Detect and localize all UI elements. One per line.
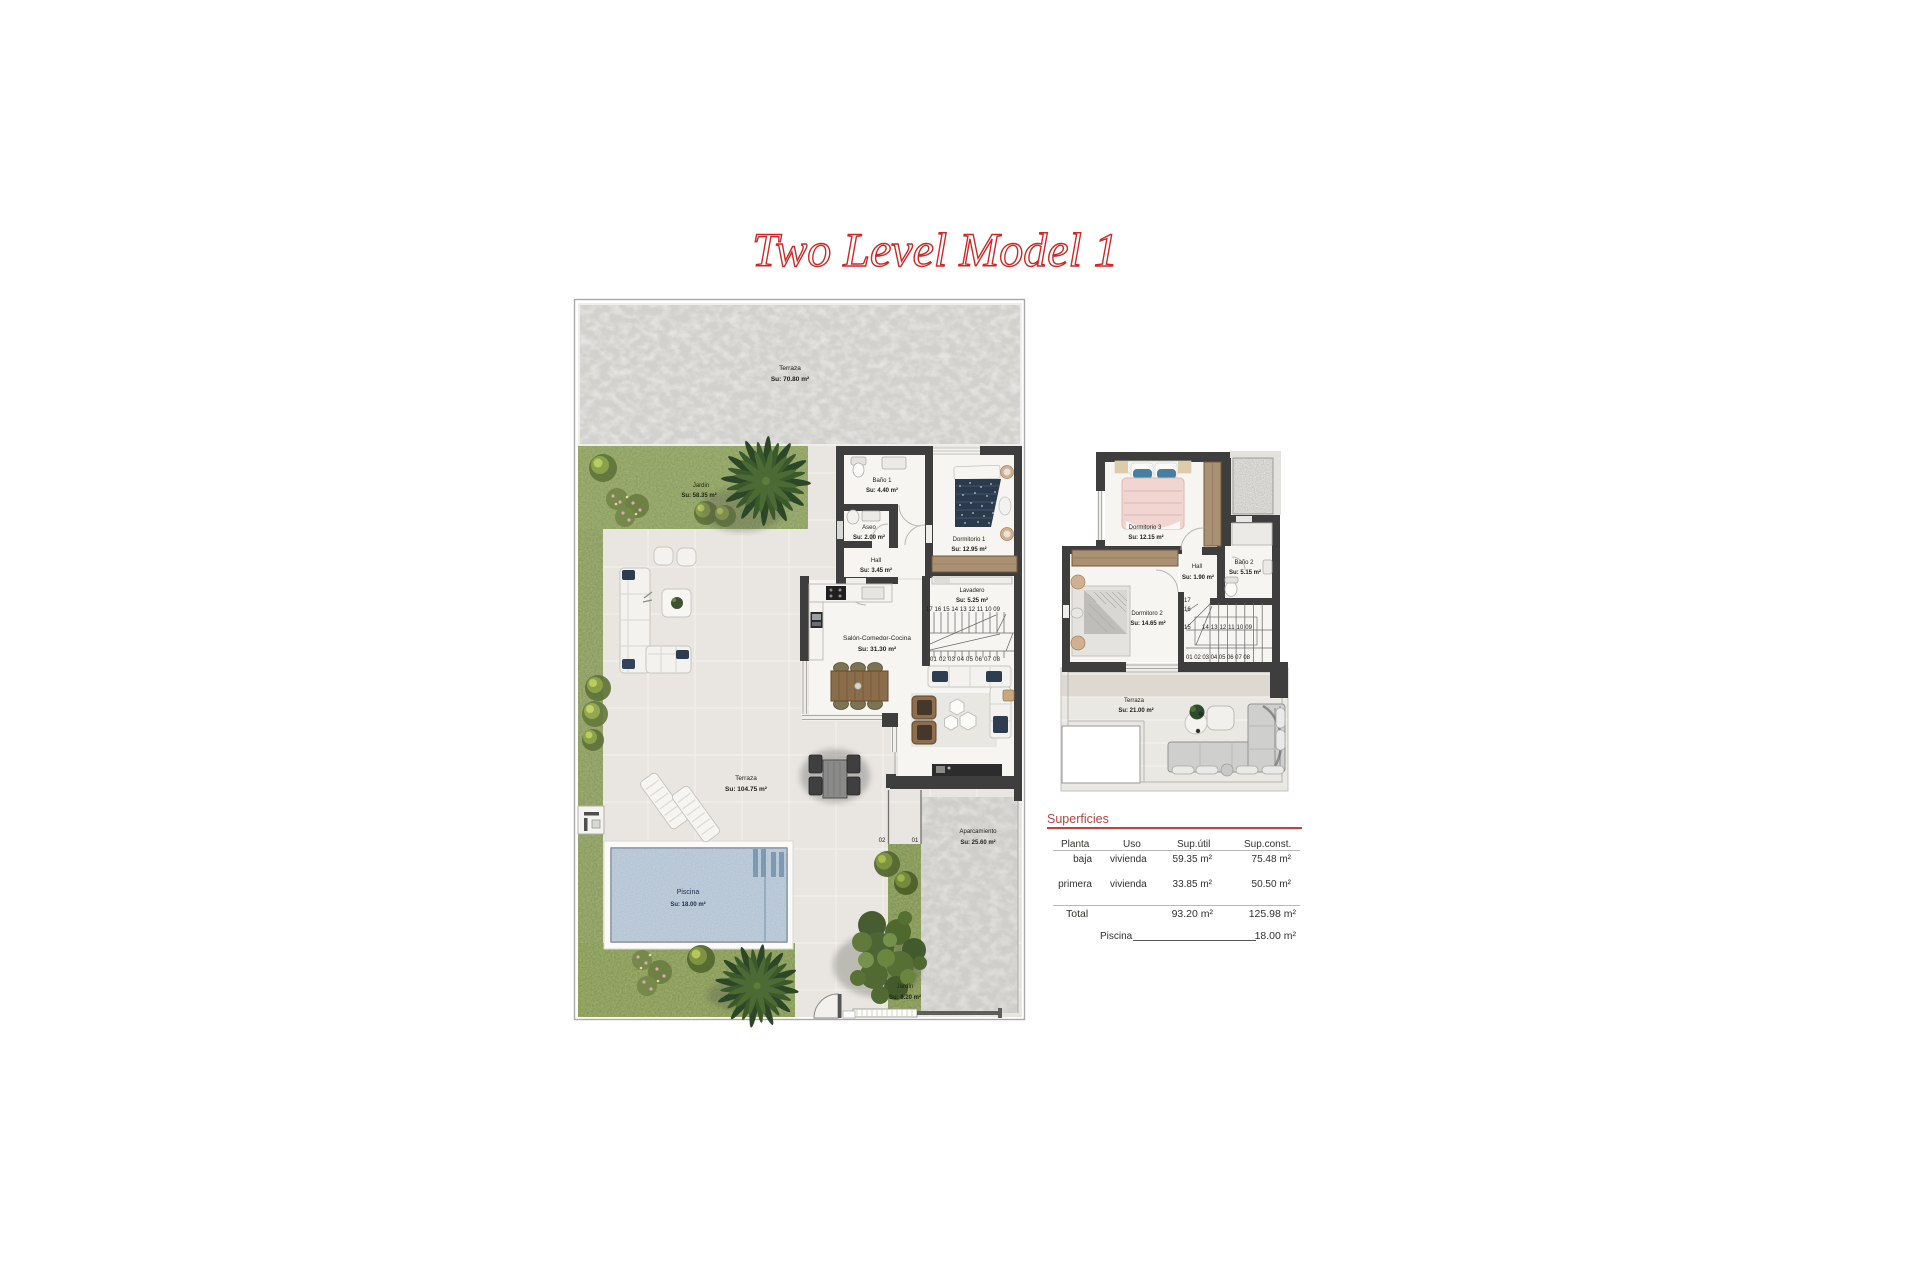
svg-text:Su: 12.15 m²: Su: 12.15 m² [1128, 534, 1163, 541]
svg-text:Salón-Comedor-Cocina: Salón-Comedor-Cocina [843, 635, 911, 642]
svg-text:Su: 70.80 m²: Su: 70.80 m² [771, 376, 810, 383]
svg-text:15: 15 [1184, 625, 1191, 631]
svg-text:vivienda: vivienda [1110, 854, 1147, 865]
svg-text:Lavadero: Lavadero [959, 588, 985, 594]
svg-text:baja: baja [1073, 854, 1092, 865]
svg-text:Two Level Model 1: Two Level Model 1 [752, 224, 1118, 277]
svg-text:17 16 15 14 13 12 11 10 09: 17 16 15 14 13 12 11 10 09 [926, 607, 1001, 613]
svg-text:Sup.const.: Sup.const. [1244, 839, 1291, 850]
svg-text:Total: Total [1066, 908, 1088, 920]
svg-text:Su: 104.75 m²: Su: 104.75 m² [725, 786, 768, 793]
svg-text:Dormitoro 2: Dormitoro 2 [1131, 611, 1163, 617]
svg-text:75.48 m²: 75.48 m² [1252, 854, 1292, 865]
svg-text:125.98 m²: 125.98 m² [1249, 908, 1297, 920]
svg-text:Dormitorio 3: Dormitorio 3 [1129, 525, 1162, 531]
svg-text:Piscina: Piscina [1100, 931, 1133, 942]
svg-text:Su: 3.45 m²: Su: 3.45 m² [860, 567, 892, 574]
svg-text:Su: 1.90 m²: Su: 1.90 m² [1182, 574, 1214, 581]
svg-text:Jardin: Jardin [693, 483, 709, 489]
svg-text:Aparcamiento: Aparcamiento [959, 829, 997, 835]
svg-text:Su: 14.65 m²: Su: 14.65 m² [1130, 620, 1165, 627]
svg-text:33.85 m²: 33.85 m² [1173, 879, 1213, 890]
svg-text:01 02 03 04 05 06 07 08: 01 02 03 04 05 06 07 08 [930, 657, 1001, 663]
svg-text:01 02 03 04 05 06 07 08: 01 02 03 04 05 06 07 08 [1186, 655, 1251, 661]
svg-text:Su: 2.00 m²: Su: 2.00 m² [853, 534, 885, 541]
svg-text:Su: 5.25 m²: Su: 5.25 m² [956, 597, 988, 604]
svg-text:Hall: Hall [1192, 564, 1202, 570]
svg-text:93.20 m²: 93.20 m² [1172, 908, 1214, 920]
svg-text:Baño 1: Baño 1 [872, 478, 892, 484]
svg-text:16: 16 [1184, 607, 1191, 613]
svg-text:Dormitorio 1: Dormitorio 1 [953, 537, 986, 543]
svg-text:Su: 58.35 m²: Su: 58.35 m² [681, 492, 716, 499]
svg-text:Terraza: Terraza [735, 775, 757, 782]
svg-text:59.35 m²: 59.35 m² [1173, 854, 1213, 865]
svg-text:Su: 12.95 m²: Su: 12.95 m² [951, 546, 986, 553]
svg-text:Su: 5.15 m²: Su: 5.15 m² [1229, 569, 1261, 576]
svg-text:02: 02 [879, 838, 886, 844]
svg-text:Su: 4.40 m²: Su: 4.40 m² [866, 487, 898, 494]
svg-text:Su: 18.00 m²: Su: 18.00 m² [670, 901, 705, 908]
svg-text:18.00 m²: 18.00 m² [1255, 930, 1297, 942]
svg-text:17: 17 [1184, 598, 1191, 604]
svg-text:01: 01 [912, 838, 919, 844]
svg-text:Planta: Planta [1061, 839, 1090, 850]
svg-text:Sup.útil: Sup.útil [1177, 839, 1210, 850]
svg-text:Hall: Hall [871, 558, 881, 564]
svg-text:Terraza: Terraza [1124, 698, 1145, 704]
svg-text:Piscina: Piscina [677, 889, 700, 896]
svg-text:Superficies: Superficies [1047, 812, 1109, 826]
svg-text:Baño 2: Baño 2 [1234, 560, 1254, 566]
svg-text:primera: primera [1058, 879, 1092, 890]
svg-text:Uso: Uso [1123, 839, 1141, 850]
svg-text:14 13 12 11 10 09: 14 13 12 11 10 09 [1202, 625, 1253, 631]
svg-text:Su: 31.30 m²: Su: 31.30 m² [858, 646, 897, 653]
svg-text:Aseo: Aseo [862, 525, 876, 531]
svg-text:Su: 21.00 m²: Su: 21.00 m² [1118, 707, 1153, 714]
svg-text:Su: 6.20 m²: Su: 6.20 m² [889, 994, 921, 1001]
svg-text:vivienda: vivienda [1110, 879, 1147, 890]
svg-text:Jardín: Jardín [897, 984, 914, 990]
svg-text:50.50 m²: 50.50 m² [1252, 879, 1292, 890]
svg-text:Terraza: Terraza [779, 365, 801, 372]
svg-text:Su: 25.60 m²: Su: 25.60 m² [960, 839, 995, 846]
